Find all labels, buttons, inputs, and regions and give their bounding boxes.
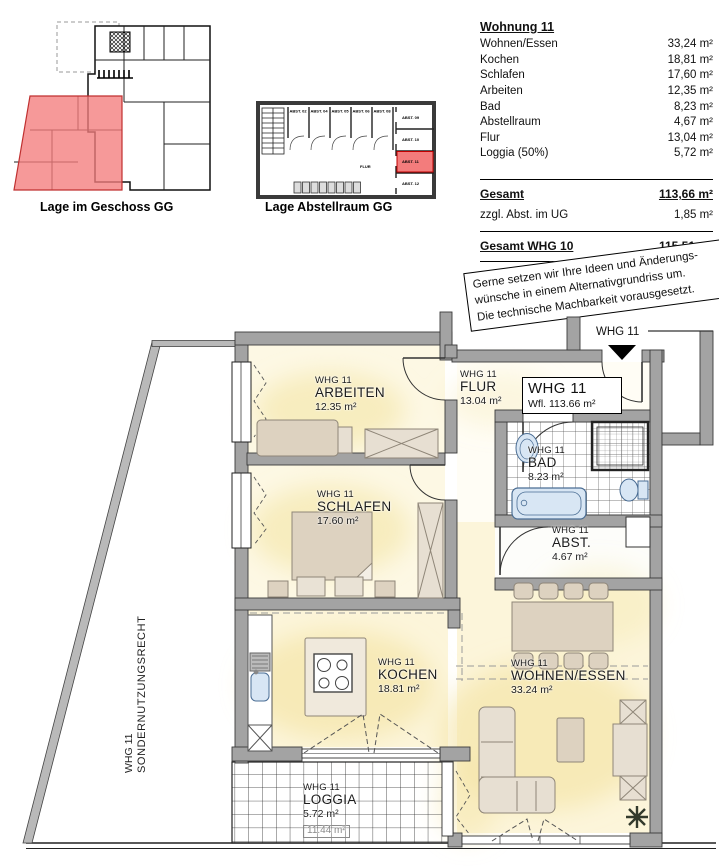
- coffee-table: [557, 718, 584, 762]
- room-label-kochen: WHG 11 KOCHEN 18.81 m²: [378, 658, 438, 695]
- shaft-box: [626, 517, 650, 547]
- room-label-loggia: WHG 11 LOGGIA 5.72 m² 11.44 m²: [303, 783, 357, 838]
- table-row: Abstellraum4,67 m²: [480, 115, 713, 131]
- chair: [564, 583, 583, 599]
- room-label-wohnen-essen: WHG 11 WOHNEN/ESSEN 33.24 m²: [511, 659, 626, 696]
- toilet-tank: [638, 481, 648, 499]
- chair: [589, 583, 608, 599]
- pillow: [335, 577, 363, 596]
- room-label-flur: WHG 11 FLUR 13.04 m²: [460, 370, 501, 407]
- dining-table: [512, 602, 613, 651]
- table-row: Kochen18,81 m²: [480, 53, 713, 69]
- plant-icon: [626, 806, 648, 828]
- table-row: Schlafen17,60 m²: [480, 68, 713, 84]
- loggia-gross-area: 11.44 m²: [303, 825, 350, 838]
- chair: [514, 583, 533, 599]
- nightstand: [375, 581, 395, 597]
- table-row: Wohnen/Essen33,24 m²: [480, 37, 713, 53]
- storage-cell-label: ABST. 04: [311, 109, 329, 114]
- geschoss-mini-plan: [12, 12, 224, 198]
- table-rule: [480, 231, 713, 232]
- room-label-bad: WHG 11 BAD 8.23 m²: [528, 446, 565, 483]
- storage-cell-label: ABST. 09: [402, 115, 420, 120]
- storage-cell-label: ABST. 06: [353, 109, 371, 114]
- sondernutzungsrecht-label: WHG 11 SONDERNUTZUNGSRECHT: [123, 617, 151, 773]
- table-row: Arbeiten12,35 m²: [480, 84, 713, 100]
- area-table: Wohnung 11 Wohnen/Essen33,24 m² Kochen18…: [480, 20, 713, 266]
- storage-cell-label: ABST. 02: [290, 109, 308, 114]
- storage-cell-label: ABST. 05: [332, 109, 350, 114]
- table-rule: [480, 179, 713, 180]
- room-label-arbeiten: WHG 11 ARBEITEN 12.35 m²: [315, 376, 385, 413]
- table-row: Bad8,23 m²: [480, 100, 713, 116]
- storage-cell-label: ABST. 10: [402, 137, 420, 142]
- storage-cell-label: ABST. 12: [402, 181, 420, 186]
- apartment-highlight: [14, 96, 122, 190]
- storage-cell-label: ABST. 08: [374, 109, 392, 114]
- room-label-schlafen: WHG 11 SCHLAFEN 17.60 m²: [317, 490, 391, 527]
- table-row: Flur13,04 m²: [480, 131, 713, 147]
- pillow: [297, 577, 325, 596]
- room-label-abstellraum: WHG 11 ABST. 4.67 m²: [552, 526, 591, 563]
- geschoss-caption: Lage im Geschoss GG: [40, 200, 173, 214]
- chair: [539, 583, 558, 599]
- desk: [257, 420, 338, 456]
- sideboard: [613, 724, 647, 776]
- shower-icon: [592, 422, 648, 470]
- abstellraum-mini-plan: ABST. 02 ABST. 04 ABST. 05 ABST. 06 ABST…: [256, 98, 438, 202]
- desk-chair: [338, 427, 352, 453]
- entrance-label: WHG 11: [596, 326, 639, 338]
- stairs-icon: [262, 108, 284, 154]
- floorplan-page: Lage im Geschoss GG ABST. 02 ABST. 04 AB…: [0, 0, 719, 866]
- area-table-title: Wohnung 11: [480, 20, 713, 34]
- nightstand: [268, 581, 288, 597]
- storage-cell-label-highlighted: ABST. 11: [402, 159, 420, 164]
- apartment-info-box: WHG 11 Wfl. 113.66 m²: [522, 377, 622, 414]
- geschoss-building: [14, 22, 210, 190]
- toilet-icon: [620, 479, 638, 501]
- table-total-row: Gesamt113,66 m²: [480, 184, 713, 204]
- kitchen-sink-icon: [251, 673, 269, 701]
- storage-corridor-label: FLUR: [360, 164, 371, 169]
- entrance-triangle-icon: [608, 345, 636, 360]
- table-row: zzgl. Abst. im UG1,85 m²: [480, 204, 713, 226]
- abstellraum-caption: Lage Abstellraum GG: [265, 200, 392, 214]
- table-row: Loggia (50%)5,72 m²: [480, 146, 713, 162]
